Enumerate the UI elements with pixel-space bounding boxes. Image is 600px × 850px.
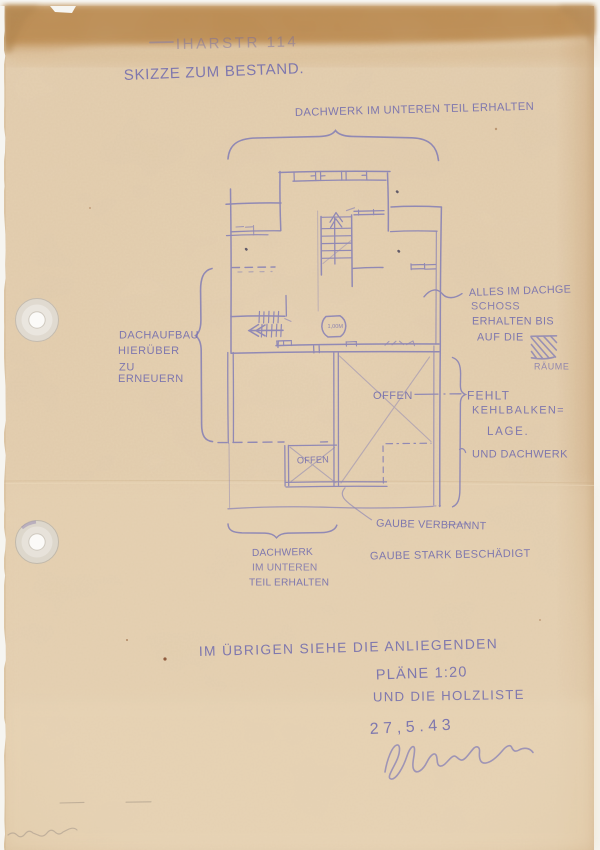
svg-text:TEIL ERHALTEN: TEIL ERHALTEN bbox=[249, 578, 329, 589]
svg-text:RÄUME: RÄUME bbox=[534, 362, 570, 372]
svg-text:KEHLBALKEN=: KEHLBALKEN= bbox=[472, 405, 565, 417]
svg-text:OFFEN: OFFEN bbox=[297, 454, 329, 465]
svg-text:ZU: ZU bbox=[119, 362, 135, 374]
svg-text:UND DIE HOLZLISTE: UND DIE HOLZLISTE bbox=[373, 687, 525, 705]
svg-text:DACHAUFBAU: DACHAUFBAU bbox=[119, 330, 199, 342]
svg-text:DACHWERK: DACHWERK bbox=[252, 547, 313, 559]
svg-text:OFFEN: OFFEN bbox=[373, 390, 413, 402]
svg-text:IHARSTR 114: IHARSTR 114 bbox=[176, 33, 299, 53]
svg-text:HIERÜBER: HIERÜBER bbox=[118, 345, 180, 357]
svg-text:1,00M: 1,00M bbox=[328, 324, 344, 330]
svg-text:IM UNTEREN: IM UNTEREN bbox=[252, 563, 317, 574]
svg-text:SCHOSS: SCHOSS bbox=[471, 301, 520, 313]
svg-text:ERHALTEN BIS: ERHALTEN BIS bbox=[472, 316, 554, 328]
svg-text:UND DACHWERK: UND DACHWERK bbox=[472, 449, 568, 461]
svg-text:ERNEUERN: ERNEUERN bbox=[118, 373, 184, 385]
svg-text:FEHLT: FEHLT bbox=[467, 389, 510, 403]
svg-text:AUF DIE: AUF DIE bbox=[477, 332, 524, 344]
svg-text:PLÄNE 1:20: PLÄNE 1:20 bbox=[376, 663, 468, 683]
svg-text:LAGE.: LAGE. bbox=[487, 426, 529, 438]
